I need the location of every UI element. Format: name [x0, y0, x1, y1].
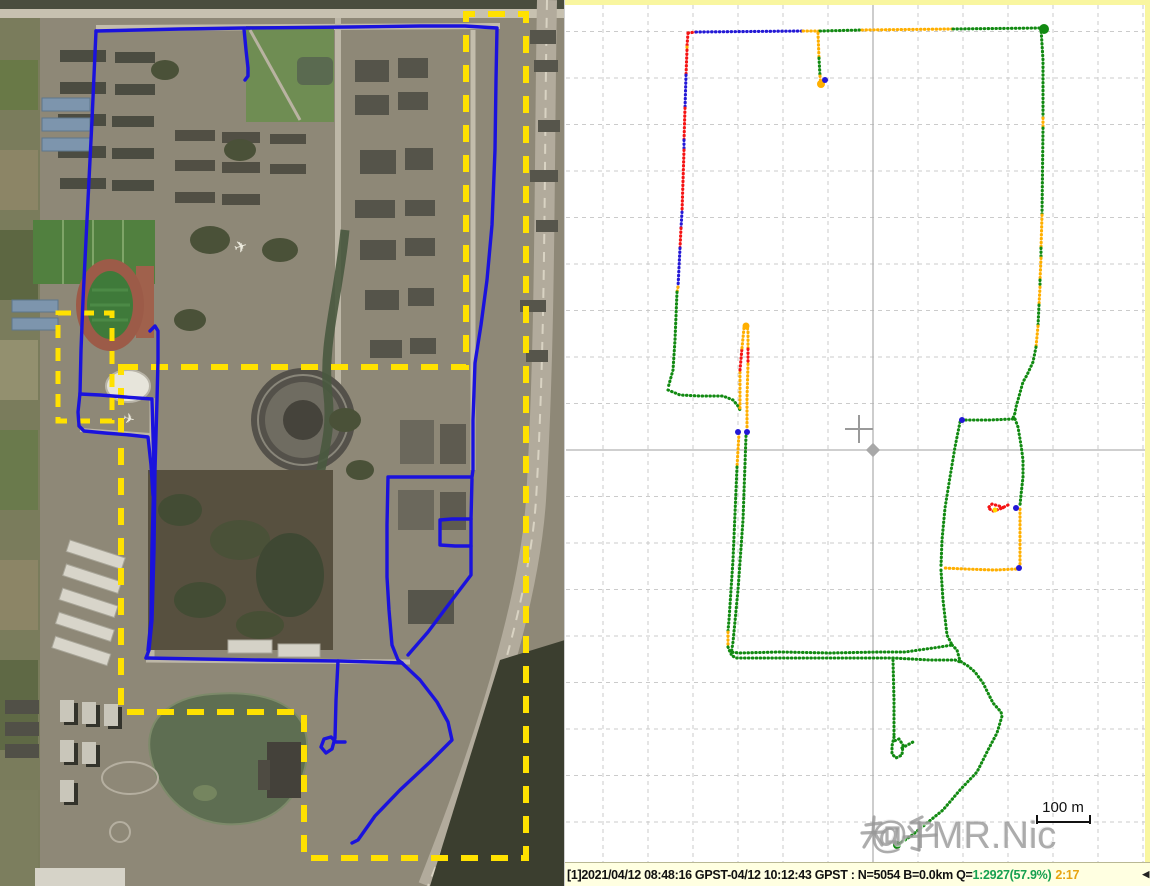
rtkplot-window: ✈ ✈ 100 m @TMR.Nic — [0, 0, 1150, 886]
scale-bar-label: 100 m — [1042, 799, 1084, 816]
status-q1-count: 1:2927(57.9%) — [973, 868, 1052, 882]
status-collapse-arrow-icon[interactable]: ◀ — [1142, 869, 1149, 880]
panel-divider — [564, 0, 565, 886]
status-time-range: [1]2021/04/12 08:48:16 GPST-04/12 10:12:… — [567, 868, 973, 882]
plot-right-border — [1145, 0, 1150, 862]
plot-top-border — [565, 0, 1150, 5]
plot-background — [565, 0, 1150, 862]
trajectory-plot[interactable]: 100 m — [0, 0, 1150, 886]
status-q2-count: 2:17 — [1055, 868, 1079, 882]
status-bar: [1]2021/04/12 08:48:16 GPST-04/12 10:12:… — [565, 862, 1150, 886]
